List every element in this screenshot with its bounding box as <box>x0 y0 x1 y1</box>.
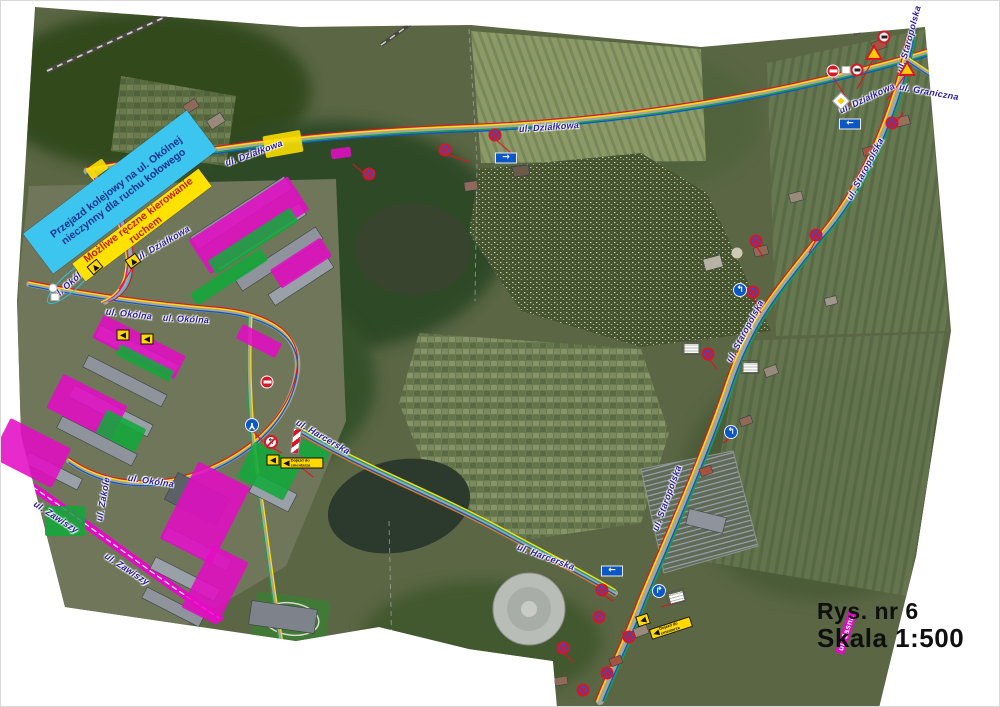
no-stopping-sign-icon <box>439 144 452 157</box>
street-label: ul. Harcerska <box>516 542 576 572</box>
sign-label: Dojazd do cmentarza <box>659 618 690 636</box>
one-way-glyph-icon: ← <box>608 567 616 576</box>
no-left-sign-icon: ↰ <box>264 435 278 449</box>
no-stopping-sign-icon <box>702 348 715 361</box>
magenta-zone <box>330 147 351 160</box>
no-stopping-sign-icon <box>601 667 614 680</box>
board-y-sign-icon: ◀Dojazd do cmentarza <box>280 458 323 469</box>
sign-label: Dojazd do cmentarza <box>291 459 321 468</box>
turn-glyph-icon: ↱ <box>655 587 663 596</box>
board-y-sign-icon: ◀ <box>635 613 651 627</box>
restriction-sign-icon <box>878 31 891 44</box>
one-way-sign-icon: ← <box>601 566 623 577</box>
board-y-glyph-icon: ◀ <box>144 335 150 343</box>
no-left-glyph-icon: ↰ <box>268 438 275 446</box>
restriction-sign-icon <box>851 64 864 77</box>
board-y-sign-icon: ◀Dojazd do cmentarza <box>649 616 693 640</box>
no-stopping-sign-icon <box>747 286 760 299</box>
board-y-sign-icon: ◀ <box>117 330 130 341</box>
no-stopping-sign-icon <box>623 631 636 644</box>
white-circle-sign-icon <box>49 284 58 293</box>
no-stopping-sign-icon <box>750 235 763 248</box>
no-entry-sign-icon <box>261 376 274 389</box>
board-y-glyph-icon: ◀ <box>270 456 276 464</box>
street-label: ul. Zawiszy <box>103 551 151 587</box>
street-label: ul. Staropolska <box>724 298 765 364</box>
triangle-sign-icon <box>865 44 883 60</box>
magenta-zone <box>181 545 248 626</box>
roundabout-glyph-icon: Y <box>249 421 256 430</box>
turn-sign-icon: ↰ <box>724 425 738 439</box>
street-label: ul. Staropolska <box>650 464 683 532</box>
white-square-sign-icon <box>51 293 60 301</box>
board-y-glyph-icon: ◀ <box>120 331 126 339</box>
street-label: ul. Okólna <box>163 313 210 325</box>
drawing-number: Rys. nr 6 <box>817 599 964 624</box>
street-label: ul. Staropolska <box>844 136 885 202</box>
magenta-zone <box>0 418 71 488</box>
traffic-plan-page: ul. Działkowaul. Działkowaul. Działkowau… <box>0 0 1000 707</box>
board-y-glyph-icon: ▲ <box>128 256 138 266</box>
street-label: ul. Zakole <box>94 476 112 522</box>
one-way-glyph-icon: → <box>502 154 510 163</box>
turn-sign-icon: ↰ <box>733 283 747 297</box>
board-w-sign-icon <box>741 360 760 374</box>
drawing-scale: Skala 1:500 <box>817 624 964 653</box>
white-square-sign-icon <box>842 66 851 74</box>
no-stopping-sign-icon <box>557 642 570 655</box>
board-w-sign-icon <box>665 588 687 606</box>
board-y-glyph-icon: ◀ <box>639 615 647 625</box>
turn-glyph-icon: ↰ <box>727 428 735 437</box>
no-stopping-sign-icon <box>886 117 899 130</box>
no-stopping-sign-icon <box>596 584 609 597</box>
magenta-zone <box>236 324 282 358</box>
board-y-sign-icon: ◀ <box>141 334 154 345</box>
board-y-glyph-icon: ◀ <box>283 459 289 467</box>
one-way-glyph-icon: ← <box>846 120 854 129</box>
board-y-glyph-icon: ▲ <box>90 262 100 272</box>
street-label: ul. Graniczna <box>898 82 959 102</box>
no-stopping-sign-icon <box>363 168 376 181</box>
board-w-sign-icon <box>682 341 701 355</box>
one-way-sign-icon: → <box>495 153 517 164</box>
turn-glyph-icon: ↰ <box>736 286 744 295</box>
street-label: ul. Okólna <box>127 473 174 489</box>
no-stopping-sign-icon <box>577 684 590 697</box>
board-y-sign-icon: ◀ <box>267 455 280 466</box>
street-label: ul. Działkowa <box>519 120 580 134</box>
roundabout-sign-icon: Y <box>245 418 259 432</box>
no-stopping-sign-icon <box>593 611 606 624</box>
no-entry-sign-icon <box>827 65 840 78</box>
magenta-zone <box>270 237 332 288</box>
turn-sign-icon: ↱ <box>652 584 666 598</box>
no-stopping-sign-icon <box>489 129 502 142</box>
green-zone <box>95 409 146 452</box>
street-label: ul. Staropolska <box>895 4 923 73</box>
one-way-sign-icon: ← <box>839 119 861 130</box>
no-stopping-sign-icon <box>810 229 823 242</box>
title-block: Rys. nr 6 Skala 1:500 <box>817 599 964 653</box>
